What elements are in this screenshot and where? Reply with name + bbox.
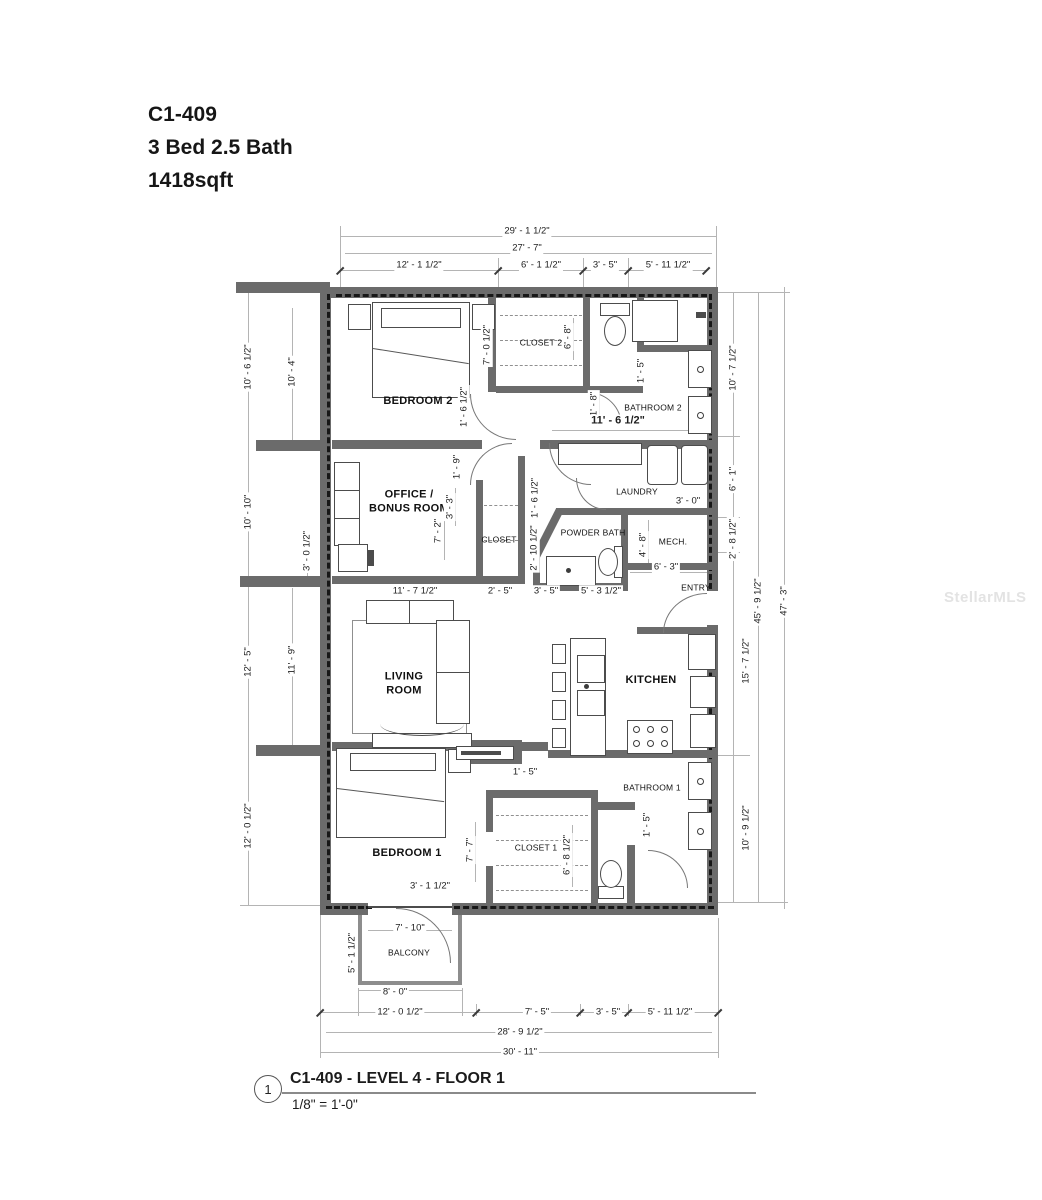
wall-segment bbox=[510, 742, 548, 751]
wall-segment bbox=[583, 298, 590, 388]
tick-mark bbox=[702, 267, 710, 275]
room-label-laundry: LAUNDRY bbox=[616, 486, 658, 497]
dim-label: 6' - 1" bbox=[727, 465, 739, 493]
unit-code: C1-409 bbox=[148, 103, 217, 127]
bed-pillow bbox=[381, 308, 461, 328]
entry-door-swing bbox=[663, 593, 707, 633]
extension-line bbox=[462, 988, 463, 1016]
sink-drain bbox=[697, 412, 704, 419]
balcony-door-sill bbox=[368, 906, 452, 908]
dimension-line bbox=[358, 990, 462, 991]
room-label-kitchen: KITCHEN bbox=[626, 673, 677, 687]
dim-label: 8' - 0" bbox=[381, 986, 409, 998]
extension-line bbox=[716, 226, 717, 288]
wall-segment bbox=[320, 903, 368, 915]
bed-pillow bbox=[350, 753, 436, 771]
dim-label: 3' - 0 1/2" bbox=[301, 529, 313, 573]
extension-line bbox=[498, 258, 499, 290]
extension-line bbox=[718, 918, 719, 1058]
sink-drain bbox=[697, 828, 704, 835]
dim-label: 45' - 9 1/2" bbox=[752, 576, 764, 625]
wall-segment bbox=[556, 508, 628, 515]
dim-label: 1' - 5" bbox=[635, 357, 647, 385]
bed-bath-count: 3 Bed 2.5 Bath bbox=[148, 136, 293, 160]
wall-segment bbox=[256, 745, 320, 756]
dim-label: 6' - 1 1/2" bbox=[519, 259, 563, 271]
wall-segment bbox=[332, 440, 482, 449]
dim-label: 5' - 11 1/2" bbox=[646, 1006, 695, 1018]
toilet-bowl bbox=[600, 860, 622, 888]
room-label-bathroom1: BATHROOM 1 bbox=[623, 782, 681, 793]
dim-label: 7' - 0 1/2" bbox=[481, 323, 493, 367]
dim-label: 10' - 6 1/2" bbox=[242, 342, 254, 391]
wall-segment bbox=[591, 802, 635, 810]
dim-label: 10' - 9 1/2" bbox=[740, 803, 752, 852]
wall-segment bbox=[332, 576, 525, 584]
office-desk bbox=[338, 544, 368, 572]
sheet-number-bubble: 1 bbox=[254, 1075, 282, 1103]
dim-label: 7' - 7" bbox=[464, 836, 476, 864]
room-label-closet2: CLOSET 2 bbox=[520, 337, 563, 348]
closet-shelf-line bbox=[496, 890, 588, 891]
faucet bbox=[584, 684, 589, 689]
dim-label: 10' - 7 1/2" bbox=[727, 343, 739, 392]
dim-label: 3' - 1 1/2" bbox=[408, 880, 452, 892]
powder-door-swing bbox=[576, 478, 606, 510]
extension-line bbox=[340, 226, 341, 288]
sink-drain bbox=[697, 778, 704, 785]
room-label-balcony: BALCONY bbox=[388, 947, 430, 958]
burner bbox=[661, 740, 668, 747]
bedroom2-door-swing bbox=[470, 394, 516, 440]
entry-closet bbox=[632, 300, 678, 342]
extension-line bbox=[628, 258, 629, 290]
dim-label: 3' - 5" bbox=[594, 1006, 622, 1018]
washer bbox=[647, 445, 678, 485]
extension-line bbox=[358, 988, 359, 1016]
closet-shelf-line bbox=[500, 315, 582, 316]
dim-label: 2' - 10 1/2" bbox=[528, 523, 540, 572]
office-door-swing bbox=[470, 443, 512, 485]
sofa-cushion-line bbox=[436, 672, 470, 673]
closet-shelf-line bbox=[500, 365, 582, 366]
dim-label: 11' - 6 1/2" bbox=[589, 415, 647, 428]
wall-segment bbox=[240, 576, 320, 587]
island-sink bbox=[577, 690, 605, 716]
dim-label: 1' - 6 1/2" bbox=[529, 476, 541, 520]
dim-label: 27' - 7" bbox=[510, 242, 543, 254]
room-label-powder: POWDER BATH bbox=[561, 527, 626, 538]
dim-label: 10' - 10" bbox=[242, 493, 254, 532]
closet-shelf-line bbox=[496, 815, 588, 816]
shelf-divider bbox=[334, 490, 360, 491]
room-label-office-closet: CLOSET bbox=[481, 534, 516, 545]
room-label-bathroom2: BATHROOM 2 bbox=[624, 402, 682, 413]
dim-label: 11' - 7 1/2" bbox=[391, 585, 440, 597]
tv-shelf bbox=[461, 751, 501, 755]
demising-line bbox=[454, 906, 714, 909]
dim-label: 30' - 11" bbox=[501, 1046, 539, 1058]
dim-label: 29' - 1 1/2" bbox=[502, 225, 551, 237]
dim-label: 15' - 7 1/2" bbox=[740, 636, 752, 685]
dim-label: 1' - 5" bbox=[511, 766, 539, 778]
dim-label: 4' - 8" bbox=[637, 531, 649, 559]
dim-label: 5' - 11 1/2" bbox=[644, 259, 693, 271]
floor-plan-sheet: C1-409 3 Bed 2.5 Bath 1418sqft StellarML… bbox=[0, 0, 1042, 1200]
dim-label: 2' - 5" bbox=[486, 585, 514, 597]
extension-line bbox=[240, 905, 322, 906]
wall-segment bbox=[476, 480, 483, 580]
kitchen-counter bbox=[690, 714, 716, 748]
dim-label: 3' - 5" bbox=[591, 259, 619, 271]
wall-segment bbox=[628, 508, 718, 515]
room-label-office: OFFICE / BONUS ROOM bbox=[369, 488, 449, 517]
drawing-title: C1-409 - LEVEL 4 - FLOOR 1 bbox=[290, 1070, 505, 1088]
demising-line bbox=[327, 294, 330, 900]
bar-stool bbox=[552, 644, 566, 664]
wall-segment bbox=[496, 386, 643, 393]
dim-label: 28' - 9 1/2" bbox=[495, 1026, 544, 1038]
dim-label: 7' - 10" bbox=[393, 922, 426, 934]
dimension-line bbox=[552, 430, 708, 431]
wall-segment bbox=[486, 790, 598, 798]
drawing-scale: 1/8" = 1'-0" bbox=[292, 1097, 358, 1112]
dim-label: 5' - 3 1/2" bbox=[579, 585, 623, 597]
dim-label: 3' - 0" bbox=[674, 495, 702, 507]
dim-label: 7' - 5" bbox=[523, 1006, 551, 1018]
toilet-bowl bbox=[598, 548, 618, 576]
dim-label: 3' - 5" bbox=[532, 585, 560, 597]
balcony-wall bbox=[358, 915, 362, 985]
watermark: StellarMLS bbox=[944, 589, 1027, 606]
closet-shelf-line bbox=[496, 840, 588, 841]
kitchen-counter bbox=[690, 676, 716, 708]
wall-segment bbox=[627, 845, 635, 905]
dim-label: 1' - 5" bbox=[641, 811, 653, 839]
dim-label: 1' - 6 1/2" bbox=[458, 385, 470, 429]
dim-label: 1' - 9" bbox=[451, 453, 463, 481]
extension-line bbox=[718, 902, 788, 903]
title-underline bbox=[282, 1092, 756, 1094]
sofa-cushion-line bbox=[409, 600, 410, 624]
wall-segment bbox=[486, 866, 493, 906]
room-label-closet1: CLOSET 1 bbox=[515, 842, 558, 853]
dim-label: 12' - 0 1/2" bbox=[375, 1006, 424, 1018]
extension-line bbox=[320, 908, 321, 1058]
burner bbox=[661, 726, 668, 733]
dim-label: 3' - 3" bbox=[444, 493, 456, 521]
dim-label: 10' - 4" bbox=[286, 355, 298, 388]
island-cabinet bbox=[577, 655, 605, 683]
dim-label: 6' - 3" bbox=[652, 561, 680, 573]
burner bbox=[647, 740, 654, 747]
dim-label: 2' - 8 1/2" bbox=[727, 517, 739, 561]
room-label-mech: MECH. bbox=[659, 536, 687, 547]
burner bbox=[633, 726, 640, 733]
closet-shelf-line bbox=[496, 865, 588, 866]
room-label-living: LIVING ROOM bbox=[385, 670, 423, 699]
wall-segment bbox=[486, 790, 493, 832]
burner bbox=[633, 740, 640, 747]
door-jamb bbox=[696, 312, 706, 318]
powder-vanity bbox=[546, 556, 596, 586]
wall-segment bbox=[518, 456, 525, 580]
dim-label: 12' - 5" bbox=[242, 645, 254, 678]
room-label-bedroom2: BEDROOM 2 bbox=[383, 394, 452, 408]
wall-segment bbox=[236, 282, 330, 293]
toilet-bowl bbox=[604, 316, 626, 346]
extension-line bbox=[718, 755, 750, 756]
dim-label: 7' - 2" bbox=[432, 517, 444, 545]
sink-drain bbox=[566, 568, 571, 573]
extension-line bbox=[718, 292, 790, 293]
toilet-tank bbox=[600, 303, 630, 316]
burner bbox=[647, 726, 654, 733]
room-label-entry: ENTRY bbox=[681, 582, 711, 593]
wall-segment bbox=[256, 440, 320, 451]
dim-label: 5' - 1 1/2" bbox=[346, 931, 358, 975]
dim-label: 6' - 8 1/2" bbox=[561, 833, 573, 877]
extension-line bbox=[583, 258, 584, 290]
nightstand bbox=[348, 304, 371, 330]
office-chair bbox=[368, 550, 374, 566]
shelf-divider bbox=[334, 518, 360, 519]
balcony-wall bbox=[458, 915, 462, 985]
refrigerator bbox=[688, 634, 716, 670]
dim-label: 11' - 9" bbox=[286, 644, 298, 677]
demising-line bbox=[336, 294, 716, 297]
dim-label: 47' - 3" bbox=[778, 584, 790, 617]
balcony-wall bbox=[358, 981, 462, 985]
closet-shelf-line bbox=[484, 505, 518, 506]
sink-drain bbox=[697, 366, 704, 373]
dim-label: 12' - 1 1/2" bbox=[394, 259, 443, 271]
bar-stool bbox=[552, 700, 566, 720]
bathroom1-door-swing bbox=[648, 850, 688, 888]
dim-label: 6' - 8" bbox=[562, 323, 574, 351]
extension-line bbox=[718, 436, 740, 437]
office-shelf bbox=[334, 462, 360, 546]
bar-stool bbox=[552, 672, 566, 692]
demising-line bbox=[326, 906, 372, 909]
dim-label: 12' - 0 1/2" bbox=[242, 801, 254, 850]
bar-stool bbox=[552, 728, 566, 748]
dryer bbox=[681, 445, 708, 485]
room-label-bedroom1: BEDROOM 1 bbox=[372, 846, 441, 860]
unit-area: 1418sqft bbox=[148, 169, 233, 193]
